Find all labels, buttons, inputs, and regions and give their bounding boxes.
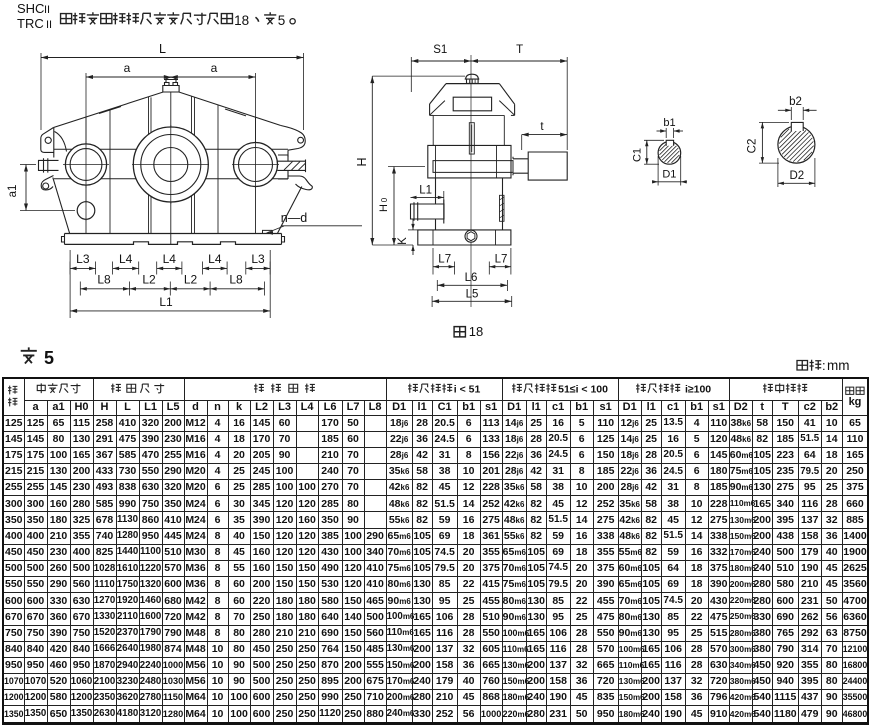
svg-text:18: 18 [469,324,483,339]
svg-text:a: a [124,61,131,75]
svg-text:K: K [397,237,409,245]
svg-text:t: t [540,121,544,133]
svg-text:L4: L4 [208,252,222,266]
svg-text:L8: L8 [97,273,111,287]
svg-text:H: H [355,157,369,166]
svg-text:n—d: n—d [281,211,307,225]
svg-text:5: 5 [278,13,286,28]
svg-text:II: II [44,4,50,16]
svg-text:a: a [211,61,218,75]
svg-text::: : [822,358,826,373]
svg-text:SHC: SHC [17,1,44,16]
svg-text:L7: L7 [495,254,508,266]
svg-text:L5: L5 [466,289,479,301]
svg-text:TRC: TRC [17,16,44,31]
svg-text:D2: D2 [789,170,804,182]
svg-text:L4: L4 [119,252,133,266]
svg-text:18: 18 [234,13,249,28]
svg-text:L8: L8 [229,273,243,287]
svg-text:b1: b1 [663,117,675,129]
svg-text:C1: C1 [632,148,644,162]
svg-text:II: II [46,19,52,31]
svg-text:L4: L4 [163,252,177,266]
svg-text:T: T [516,44,523,56]
svg-text:D1: D1 [662,169,676,181]
svg-text:L: L [159,42,166,56]
svg-text:a1: a1 [7,185,19,198]
svg-text:L3: L3 [251,252,265,266]
svg-text:L2: L2 [184,273,198,287]
svg-text:H: H [378,204,390,212]
svg-text:L2: L2 [142,273,156,287]
svg-text:L6: L6 [465,272,478,284]
svg-text:0: 0 [380,197,389,202]
svg-text:b2: b2 [789,96,802,108]
svg-text:S1: S1 [433,44,447,56]
svg-text:C2: C2 [747,139,759,154]
svg-text:L3: L3 [76,252,90,266]
svg-text:5: 5 [44,348,54,368]
svg-text:mm: mm [827,358,850,373]
svg-text:L1: L1 [419,185,432,197]
svg-text:L7: L7 [438,254,451,266]
svg-text:L1: L1 [159,295,173,309]
